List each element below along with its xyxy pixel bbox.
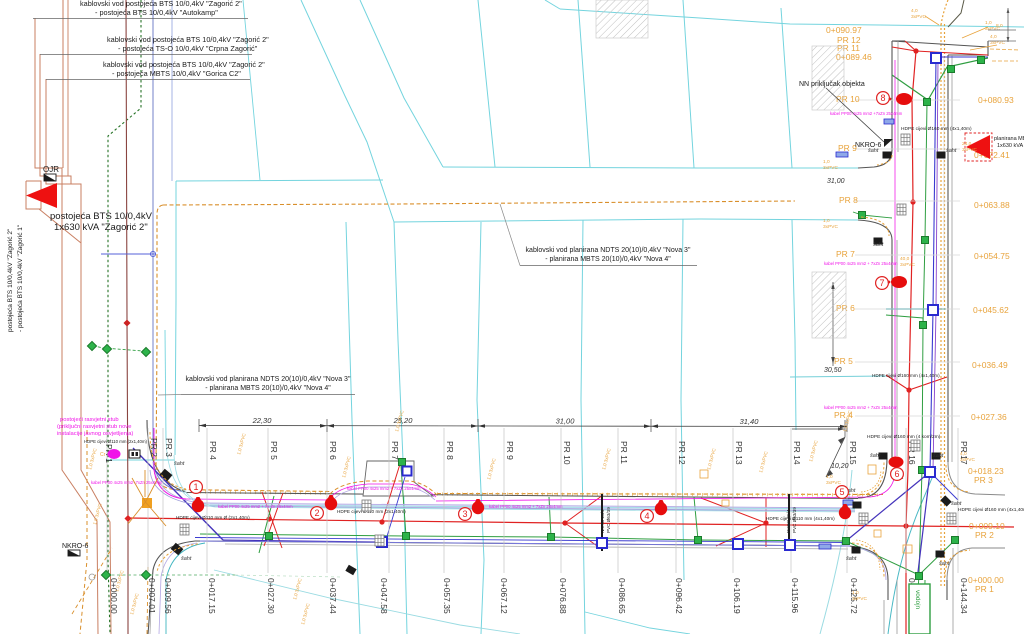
svg-text:0+007.01: 0+007.01 <box>147 578 157 614</box>
svg-text:0+047.58: 0+047.58 <box>379 578 389 614</box>
svg-text:- planirana MBTS 20(10)/0,4kV: - planirana MBTS 20(10)/0,4kV "Nova 4" <box>545 256 671 263</box>
svg-text:šaht: šaht <box>933 453 944 459</box>
svg-text:PR 5: PR 5 <box>834 356 853 366</box>
svg-text:HDPE cijevi Ø160 mm (4x1,40m): HDPE cijevi Ø160 mm (4x1,40m) <box>901 126 972 132</box>
svg-text:- postojeća BTS 10/0,4kV "Auto: - postojeća BTS 10/0,4kV "Autokamp" <box>95 8 218 17</box>
svg-text:PR 5: PR 5 <box>269 441 279 460</box>
svg-text:PR 9: PR 9 <box>505 441 515 460</box>
svg-text:0+090.97: 0+090.97 <box>826 25 862 35</box>
svg-text:šaht: šaht <box>868 148 879 154</box>
svg-text:40,0: 40,0 <box>900 256 910 262</box>
svg-text:8,0: 8,0 <box>996 23 1003 29</box>
svg-text:PR 12: PR 12 <box>677 441 687 465</box>
svg-text:PR 8: PR 8 <box>445 441 455 460</box>
svg-text:1,0: 1,0 <box>826 474 833 480</box>
svg-text:31,00: 31,00 <box>827 178 845 185</box>
svg-text:HDPE cijevi Ø160 mm (4 kom/2m): HDPE cijevi Ø160 mm (4 kom/2m) <box>867 434 941 440</box>
svg-text:kabel PP00 4x25 mm2 + 7x Zn 25: kabel PP00 4x25 mm2 + 7x Zn 25x4mm <box>218 504 293 509</box>
svg-text:1x630 kVA: 1x630 kVA <box>997 143 1024 149</box>
svg-text:kabel PP00 4x25 mm2 + 7xZn 25x: kabel PP00 4x25 mm2 + 7xZn 25x4mm <box>824 261 898 266</box>
svg-text:1,0: 1,0 <box>852 590 859 596</box>
svg-text:šaht: šaht <box>870 453 881 459</box>
svg-text:4,0: 4,0 <box>911 8 918 14</box>
svg-text:0+009.56: 0+009.56 <box>163 578 173 614</box>
svg-text:PR 7: PR 7 <box>836 249 855 259</box>
svg-text:4,0: 4,0 <box>990 34 997 40</box>
svg-text:0+080.93: 0+080.93 <box>978 95 1014 105</box>
svg-text:postojeća BTS 10/0,4kV "Zagori: postojeća BTS 10/0,4kV "Zagorić 2" <box>7 228 14 332</box>
svg-text:HDPE cijevi Ø110 mm (2x1,40m): HDPE cijevi Ø110 mm (2x1,40m) <box>84 439 148 444</box>
svg-text:4,0: 4,0 <box>960 451 967 457</box>
svg-text:šaht: šaht <box>951 501 962 507</box>
svg-text:PR 15: PR 15 <box>848 441 858 465</box>
svg-text:kablovski vod planirana NDTS 2: kablovski vod planirana NDTS 20(10)/0,4k… <box>526 247 691 254</box>
svg-text:1,0: 1,0 <box>823 218 830 224</box>
svg-text:šaht: šaht <box>181 556 192 562</box>
svg-text:kablovski vod postojeća BTS 10: kablovski vod postojeća BTS 10/0,4kV "Za… <box>103 60 265 69</box>
svg-text:kablovski vod postojeća BTS 10: kablovski vod postojeća BTS 10/0,4kV "Za… <box>80 0 242 8</box>
svg-text:PR 6: PR 6 <box>328 441 338 460</box>
svg-text:PR 1: PR 1 <box>975 584 994 594</box>
svg-text:6: 6 <box>894 469 899 479</box>
svg-text:šaht: šaht <box>846 556 857 562</box>
svg-text:kabel PP00 4x25 mm2 + 7xZn 25x: kabel PP00 4x25 mm2 + 7xZn 25x4mm <box>489 504 563 509</box>
svg-text:- postojeća BTS 10/0,4kV "Zago: - postojeća BTS 10/0,4kV "Zagorić 1" <box>17 224 24 332</box>
svg-text:22,30: 22,30 <box>252 416 273 425</box>
svg-text:vodojn: vodojn <box>914 590 921 610</box>
svg-text:0+057.35: 0+057.35 <box>442 578 452 614</box>
svg-text:kabel PP00 4x25 mm2 +7xZn 25x4: kabel PP00 4x25 mm2 +7xZn 25x4mm <box>830 111 903 116</box>
svg-text:PR 2: PR 2 <box>149 438 159 457</box>
svg-text:instalacije javnog osvjetljenj: instalacije javnog osvjetljenja) <box>57 431 133 437</box>
svg-text:8: 8 <box>880 93 885 103</box>
svg-text:0+063.88: 0+063.88 <box>974 200 1010 210</box>
svg-text:kablovski vod planirana NDTS 2: kablovski vod planirana NDTS 20(10)/0,4k… <box>186 376 351 383</box>
svg-text:- postojeća MBTS 10/0,4kV "Gor: - postojeća MBTS 10/0,4kV "Gorica C2" <box>112 69 241 78</box>
svg-text:1x630 kVA "Zagorić 2": 1x630 kVA "Zagorić 2" <box>54 222 148 233</box>
svg-text:PVC Ø63/39: PVC Ø63/39 <box>792 507 797 533</box>
svg-text:1: 1 <box>193 482 198 492</box>
svg-text:3xPVC: 3xPVC <box>911 14 926 20</box>
svg-text:5: 5 <box>839 487 844 497</box>
svg-text:7: 7 <box>879 278 884 288</box>
svg-text:3xPVC: 3xPVC <box>852 596 867 602</box>
svg-text:0+027.30: 0+027.30 <box>266 578 276 614</box>
svg-text:Cr: Cr <box>100 452 106 458</box>
svg-text:3xPVC: 3xPVC <box>960 457 975 463</box>
svg-text:0+037.44: 0+037.44 <box>328 578 338 614</box>
svg-text:postojeća BTS 10/0,4kV: postojeća BTS 10/0,4kV <box>50 211 153 222</box>
svg-text:0+106.19: 0+106.19 <box>732 578 742 614</box>
svg-text:- postojeća TS-O 10/0,4kV "Crp: - postojeća TS-O 10/0,4kV "Crpna Zagorić… <box>118 44 258 53</box>
svg-text:PR 4: PR 4 <box>208 441 218 460</box>
svg-text:(priključni rasvjetni stub nov: (priključni rasvjetni stub nove <box>57 424 131 430</box>
svg-text:31,40: 31,40 <box>740 417 760 426</box>
svg-text:PR 13: PR 13 <box>734 441 744 465</box>
svg-text:4: 4 <box>644 511 649 521</box>
svg-text:HDPE cijevi Ø160 mm (4x1,40m): HDPE cijevi Ø160 mm (4x1,40m) <box>872 373 940 378</box>
svg-text:kabel PP00 4x25 mm2 + 7xZn 25x: kabel PP00 4x25 mm2 + 7xZn 25x4mm <box>824 405 898 410</box>
svg-text:OJR: OJR <box>43 165 59 174</box>
svg-text:- planirana MBTS 20(10)/0,4kV: - planirana MBTS 20(10)/0,4kV "Nova 4" <box>205 385 331 392</box>
svg-text:30,50: 30,50 <box>824 367 842 374</box>
svg-text:0+086.65: 0+086.65 <box>617 578 627 614</box>
svg-text:NKRO-6: NKRO-6 <box>62 543 89 550</box>
svg-text:0+054.75: 0+054.75 <box>974 251 1010 261</box>
svg-text:šaht: šaht <box>946 148 957 154</box>
svg-text:2: 2 <box>314 508 319 518</box>
svg-text:PVC Ø63/39: PVC Ø63/39 <box>606 507 611 533</box>
svg-text:šaht: šaht <box>873 242 884 248</box>
svg-text:3xPVC: 3xPVC <box>823 165 838 171</box>
svg-text:HDPE cijevi Ø110 mm (4x1,40m): HDPE cijevi Ø110 mm (4x1,40m) <box>766 516 835 521</box>
svg-text:24,0: 24,0 <box>962 141 972 147</box>
svg-text:PR 8: PR 8 <box>839 195 858 205</box>
svg-text:PR 3: PR 3 <box>164 438 174 457</box>
svg-text:HDPE cijevi Ø160 mm (4x1,40m): HDPE cijevi Ø160 mm (4x1,40m) <box>958 507 1024 513</box>
svg-text:0+076.88: 0+076.88 <box>558 578 568 614</box>
svg-text:planirana MB: planirana MB <box>994 136 1024 142</box>
svg-text:kabel PP00 4x25 mm2 + 7xZn 25x: kabel PP00 4x25 mm2 + 7xZn 25x4mm <box>347 486 421 491</box>
svg-text:PR 3: PR 3 <box>974 475 993 485</box>
svg-text:0+067.12: 0+067.12 <box>499 578 509 614</box>
svg-text:0+017.15: 0+017.15 <box>207 578 217 614</box>
svg-text:postojeći rasvjetni stub: postojeći rasvjetni stub <box>60 417 119 423</box>
svg-text:kablovski vod postojeća BTS 10: kablovski vod postojeća BTS 10/0,4kV "Za… <box>107 35 269 44</box>
svg-text:10,20: 10,20 <box>831 463 849 470</box>
svg-text:0+036.49: 0+036.49 <box>972 360 1008 370</box>
svg-text:1,0: 1,0 <box>823 159 830 165</box>
svg-text:0+115.96: 0+115.96 <box>790 578 800 613</box>
svg-text:HDPE cijevi Ø110 mm Ø (2x1,40m: HDPE cijevi Ø110 mm Ø (2x1,40m) <box>176 515 250 520</box>
svg-text:3: 3 <box>462 509 467 519</box>
svg-text:PR 14: PR 14 <box>792 441 802 465</box>
svg-text:PR 2: PR 2 <box>975 530 994 540</box>
svg-text:NN priključak objekta: NN priključak objekta <box>799 81 865 88</box>
svg-text:3xPVC: 3xPVC <box>826 480 841 486</box>
svg-text:PR 11: PR 11 <box>619 441 629 464</box>
svg-text:šaht: šaht <box>174 461 185 467</box>
svg-text:1,0: 1,0 <box>985 20 992 26</box>
svg-text:3xPVC: 3xPVC <box>823 224 838 230</box>
svg-text:HDPE cijevi Ø110 mm (2x1,40m): HDPE cijevi Ø110 mm (2x1,40m) <box>337 509 406 514</box>
svg-text:0+045.62: 0+045.62 <box>973 305 1009 315</box>
svg-text:PR 10: PR 10 <box>562 441 572 465</box>
svg-text:3xPVC: 3xPVC <box>900 262 915 268</box>
svg-text:0+027.36: 0+027.36 <box>971 412 1007 422</box>
svg-text:3xPVC: 3xPVC <box>962 147 977 153</box>
svg-text:PR 7: PR 7 <box>390 441 400 460</box>
svg-text:31,00: 31,00 <box>556 417 576 426</box>
svg-text:0+096.42: 0+096.42 <box>674 578 684 614</box>
svg-text:kabel PP00 4x25 mm2+7xZn 25x4m: kabel PP00 4x25 mm2+7xZn 25x4mm <box>91 480 163 485</box>
